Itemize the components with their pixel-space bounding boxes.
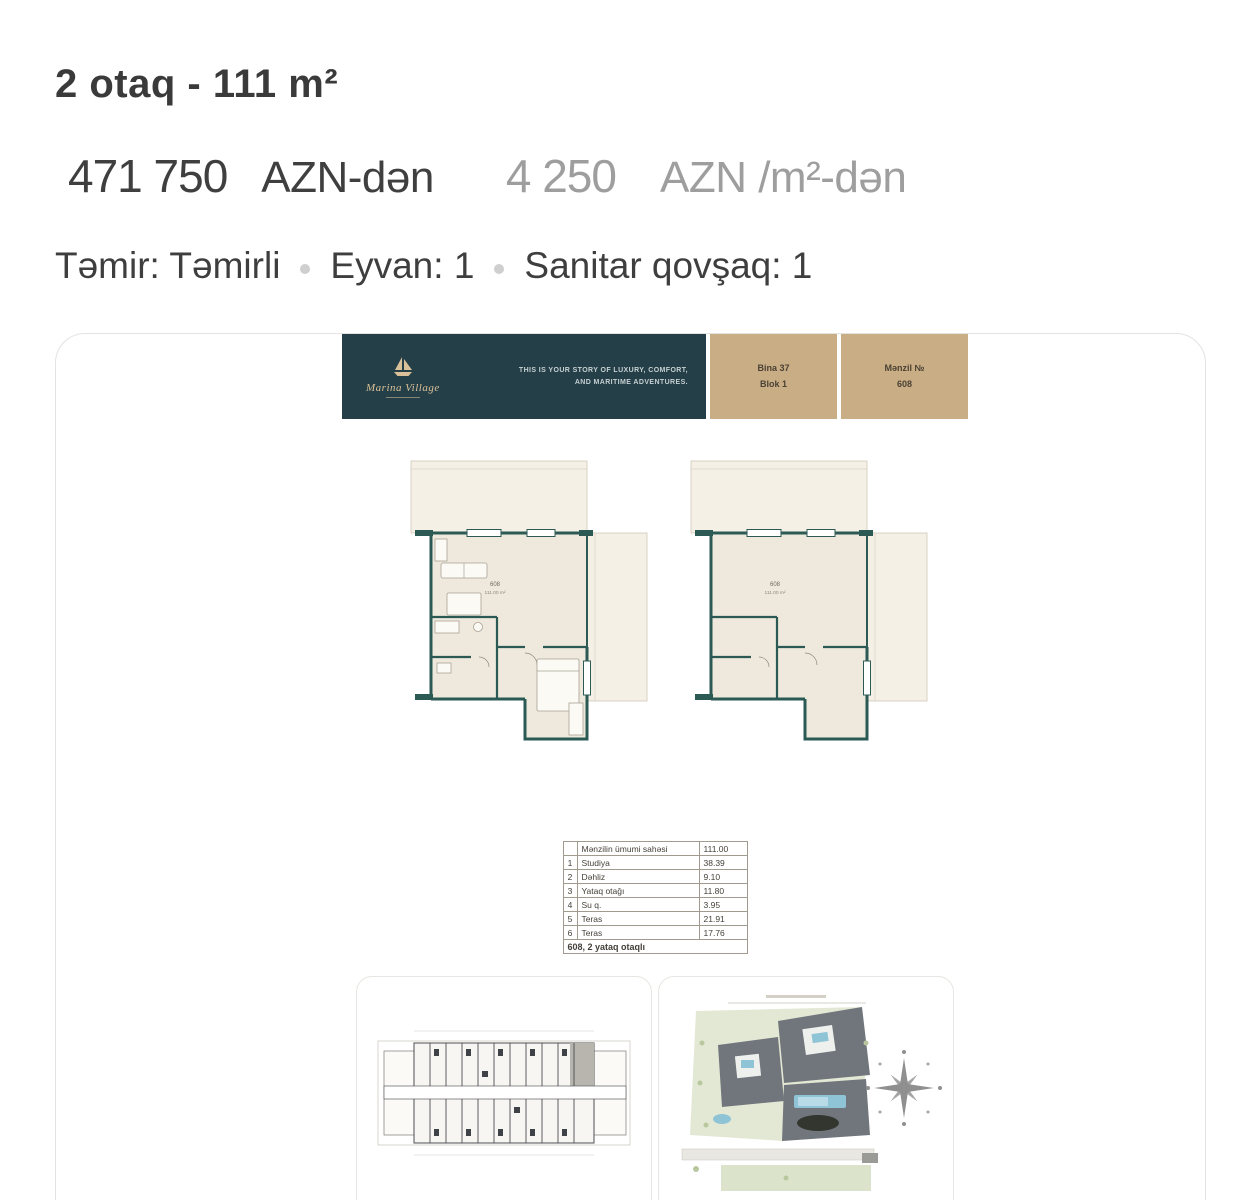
apartment-number: 608: [897, 377, 912, 392]
cell-value: 9.10: [699, 870, 747, 884]
site-plan-drawing: [666, 983, 946, 1200]
price-per-m2-currency: AZN /m²-dən: [660, 153, 906, 203]
slogan-line-2: AND MARITIME ADVENTURES.: [519, 377, 688, 388]
cell-label: Su q.: [577, 898, 699, 912]
table-footer-label: 608, 2 yataq otaqlı: [563, 940, 747, 954]
building-floor-plan-drawing: [364, 983, 644, 1200]
table-header-row: Mənzilin ümumi sahəsi 111.00: [563, 842, 747, 856]
cell-no: 6: [563, 926, 577, 940]
cell-label: Dəhliz: [577, 870, 699, 884]
sailboat-icon: [390, 355, 416, 379]
dot-separator-icon: [300, 264, 310, 274]
table-row: 3 Yataq otağı 11.80: [563, 884, 747, 898]
cell-no: 3: [563, 884, 577, 898]
brand-logo: Marina Village: [366, 355, 440, 398]
cell-value: 3.95: [699, 898, 747, 912]
cell-no: 1: [563, 856, 577, 870]
floor-plans: [342, 447, 968, 777]
project-banner: Marina Village THIS IS YOUR STORY OF LUX…: [342, 334, 968, 419]
table-row: 6 Teras 17.76: [563, 926, 747, 940]
cell-value: 111.00: [699, 842, 747, 856]
brand-subline: [386, 397, 420, 398]
table-row: 1 Studiya 38.39: [563, 856, 747, 870]
cell-value: 11.80: [699, 884, 747, 898]
apartment-label: Mənzil №: [884, 361, 924, 376]
cell-label: Yataq otağı: [577, 884, 699, 898]
slogan-line-1: THIS IS YOUR STORY OF LUXURY, COMFORT,: [519, 365, 688, 376]
cell-value: 17.76: [699, 926, 747, 940]
thumbnail-row: [342, 976, 968, 1200]
listing-image-card[interactable]: Marina Village THIS IS YOUR STORY OF LUX…: [55, 333, 1206, 1200]
floor-plan-furnished: [375, 447, 655, 777]
feature-balcony: Eyvan: 1: [330, 245, 474, 287]
listing-image-content: Marina Village THIS IS YOUR STORY OF LUX…: [342, 334, 968, 1200]
dot-separator-icon: [494, 264, 504, 274]
listing-header: 2 otaq - 111 m² 471 750 AZN-dən 4 250 AZ…: [0, 0, 1260, 287]
cell-label: Mənzilin ümumi sahəsi: [577, 842, 699, 856]
page-title: 2 otaq - 111 m²: [55, 62, 1260, 107]
cell-value: 38.39: [699, 856, 747, 870]
listing-page: 2 otaq - 111 m² 471 750 AZN-dən 4 250 AZ…: [0, 0, 1260, 1200]
brand-name: Marina Village: [366, 382, 440, 394]
price-per-m2-value: 4 250: [506, 149, 616, 203]
block-number: Blok 1: [760, 377, 787, 392]
area-table: Mənzilin ümumi sahəsi 111.00 1 Studiya 3…: [563, 841, 748, 954]
banner-brand-panel: Marina Village THIS IS YOUR STORY OF LUX…: [342, 334, 706, 419]
feature-repair: Təmir: Təmirli: [55, 245, 280, 287]
compass-icon: [866, 1050, 942, 1126]
cell-no: [563, 842, 577, 856]
price-row: 471 750 AZN-dən 4 250 AZN /m²-dən: [55, 149, 1260, 203]
cell-label: Teras: [577, 912, 699, 926]
floor-plan-unfurnished: [655, 447, 935, 777]
price-currency: AZN-dən: [261, 153, 434, 203]
site-plan-thumb: [658, 976, 954, 1200]
banner-slogan: THIS IS YOUR STORY OF LUXURY, COMFORT, A…: [519, 365, 688, 387]
cell-value: 21.91: [699, 912, 747, 926]
cell-label: Teras: [577, 926, 699, 940]
building-floor-plan-thumb: [356, 976, 652, 1200]
cell-no: 5: [563, 912, 577, 926]
apartment-badge: Mənzil № 608: [841, 334, 968, 419]
table-row: 4 Su q. 3.95: [563, 898, 747, 912]
building-badge: Bina 37 Blok 1: [710, 334, 837, 419]
price-value: 471 750: [68, 149, 227, 203]
table-row: 5 Teras 21.91: [563, 912, 747, 926]
features-row: Təmir: Təmirli Eyvan: 1 Sanitar qovşaq: …: [55, 245, 1260, 287]
cell-no: 2: [563, 870, 577, 884]
cell-label: Studiya: [577, 856, 699, 870]
table-row: 2 Dəhliz 9.10: [563, 870, 747, 884]
cell-no: 4: [563, 898, 577, 912]
table-footer-row: 608, 2 yataq otaqlı: [563, 940, 747, 954]
building-number: Bina 37: [757, 361, 789, 376]
feature-bathroom: Sanitar qovşaq: 1: [524, 245, 812, 287]
